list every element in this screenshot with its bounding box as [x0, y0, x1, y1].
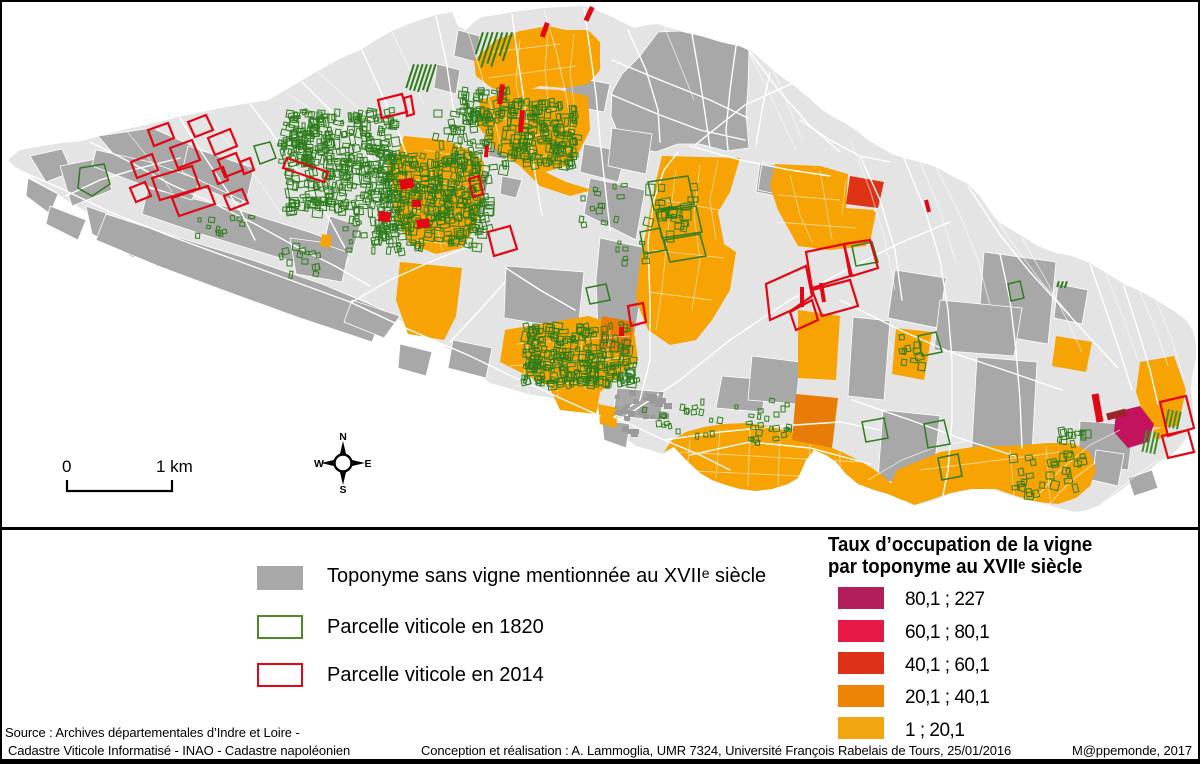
svg-text:N: N — [339, 431, 347, 443]
svg-text:0: 0 — [62, 457, 71, 476]
svg-text:W: W — [314, 458, 324, 470]
svg-text:E: E — [364, 458, 371, 470]
svg-text:S: S — [339, 484, 346, 496]
svg-text:1 km: 1 km — [156, 457, 193, 476]
